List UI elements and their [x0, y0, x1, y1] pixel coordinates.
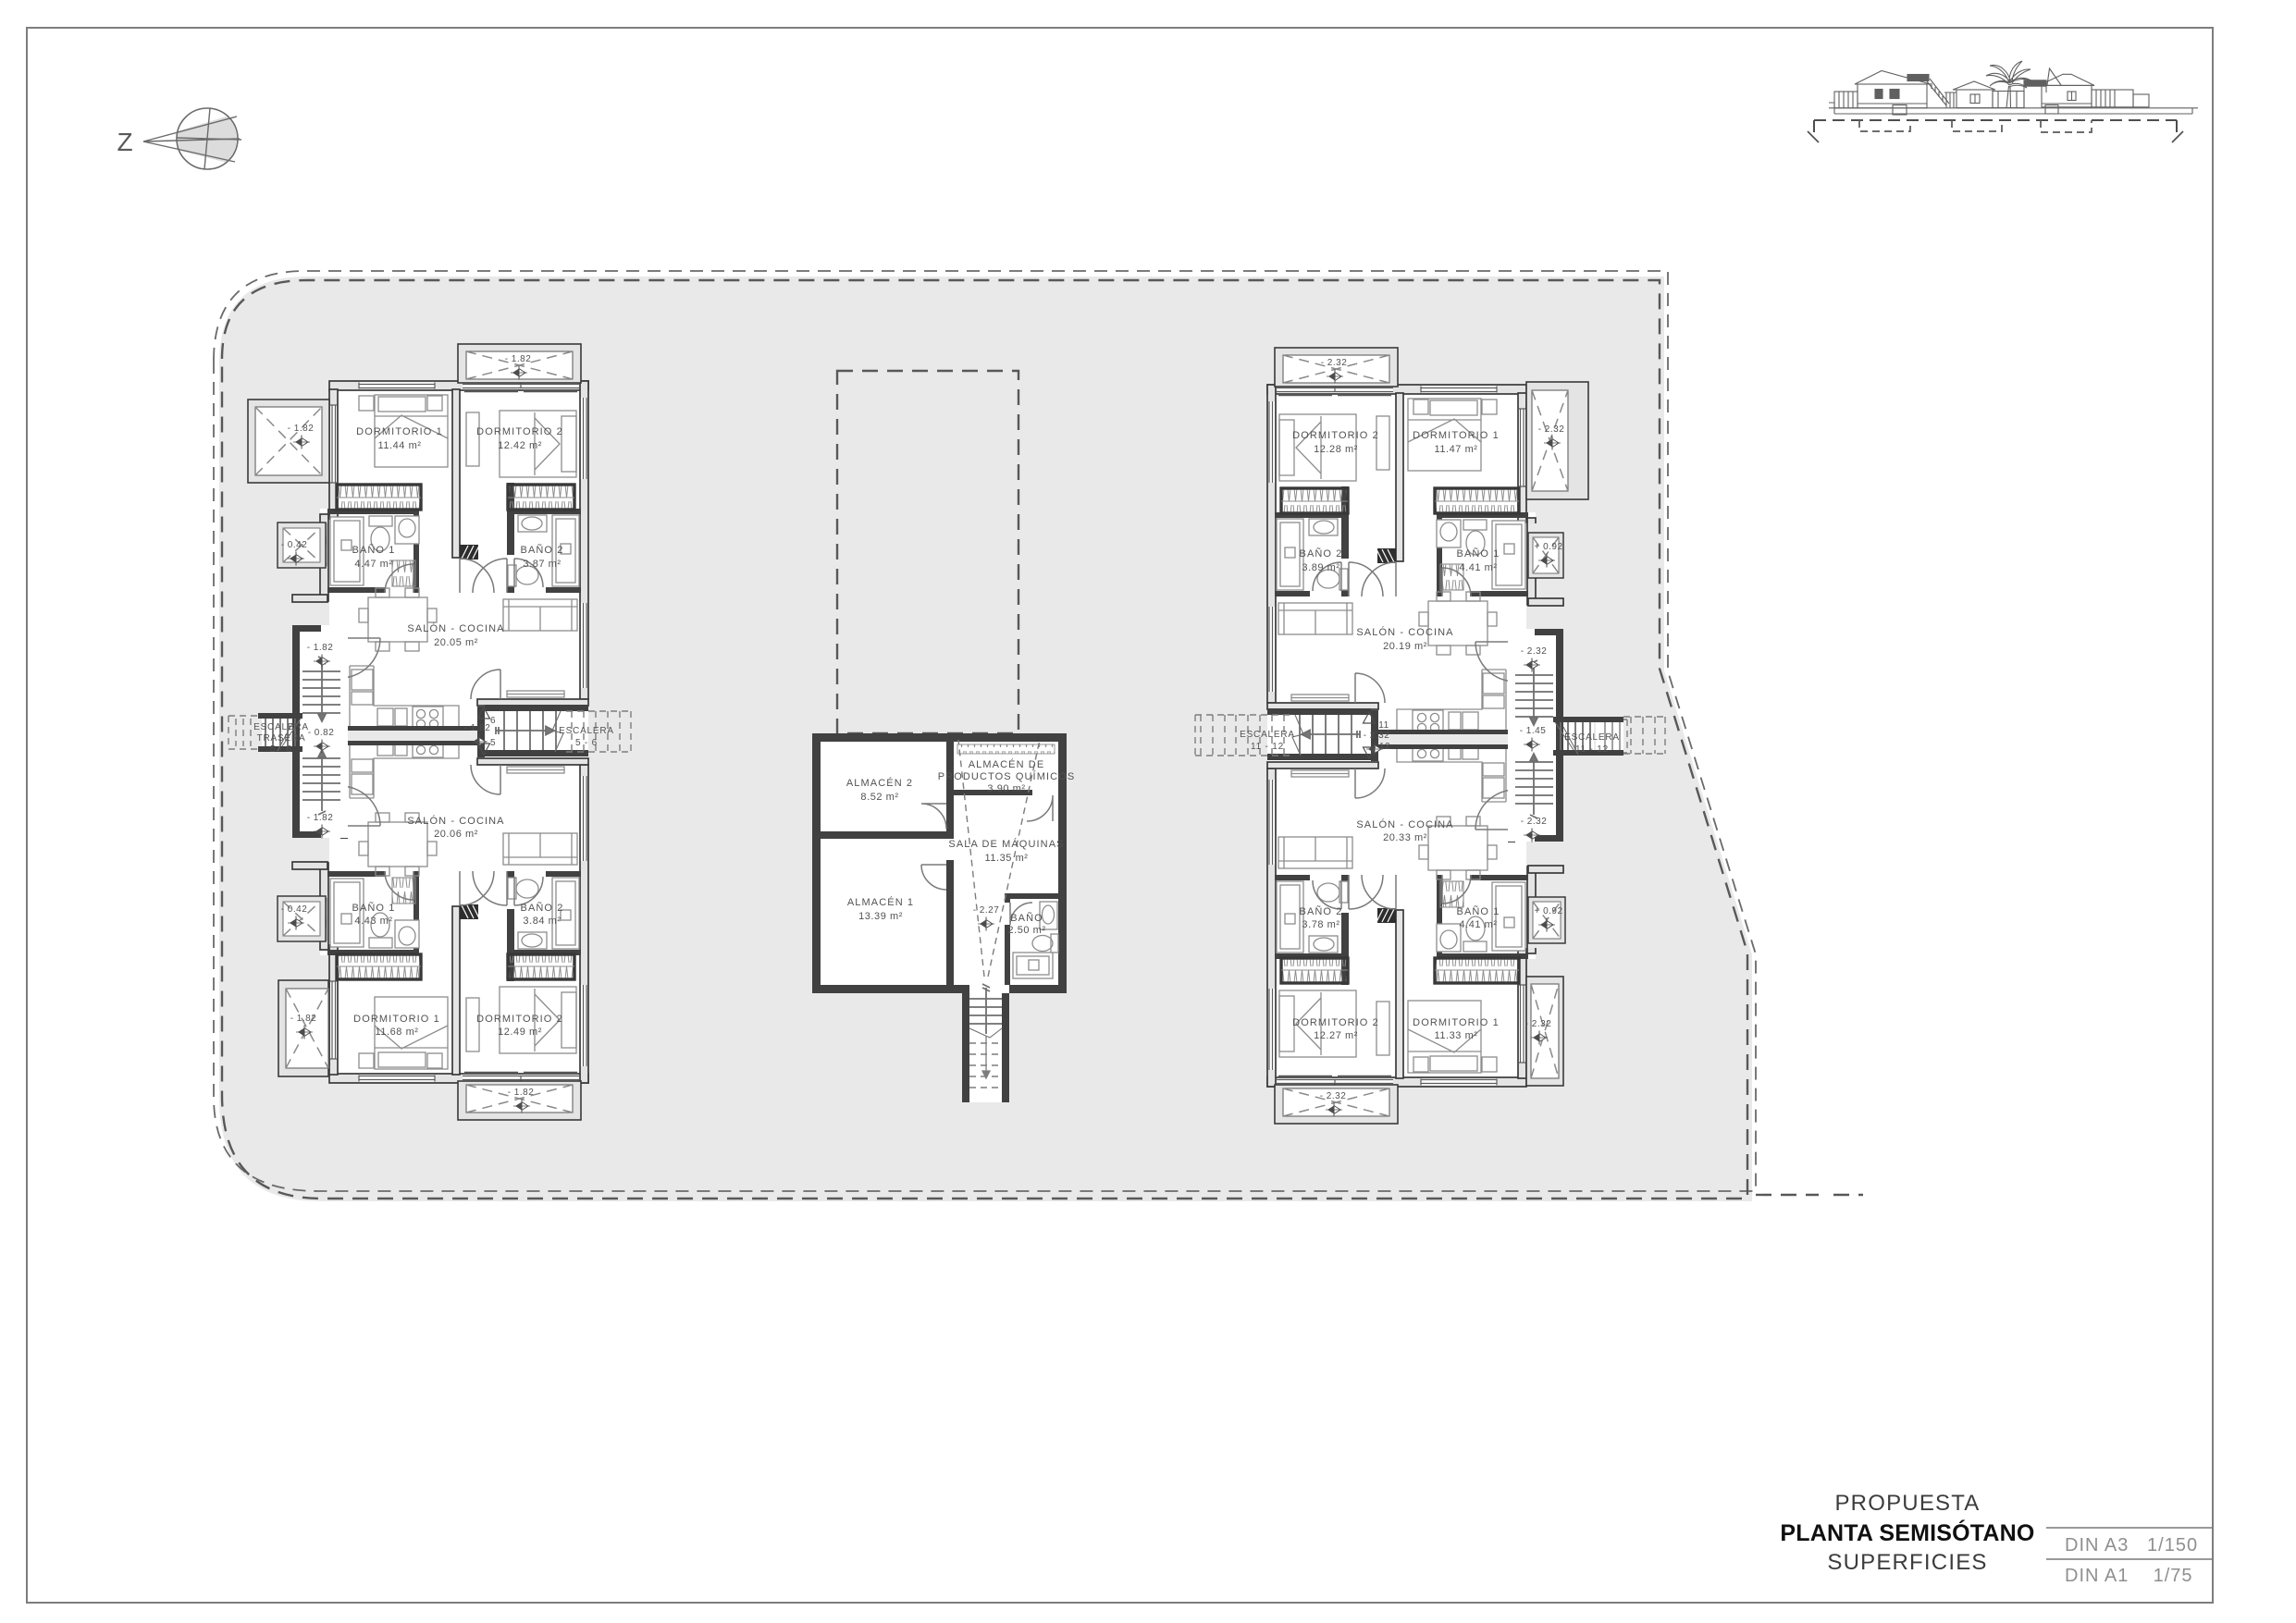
svg-text:3.84 m²: 3.84 m² — [523, 916, 561, 927]
svg-text:4.47 m²: 4.47 m² — [354, 559, 392, 570]
svg-text:6: 6 — [490, 716, 496, 726]
svg-text:SUPERFICIES: SUPERFICIES — [1827, 1550, 1987, 1575]
svg-text:BAÑO 1: BAÑO 1 — [352, 902, 396, 914]
svg-text:BAÑO 1: BAÑO 1 — [352, 544, 396, 556]
svg-text:- 2.32: - 2.32 — [1538, 424, 1565, 435]
svg-text:4.41 m²: 4.41 m² — [1459, 562, 1497, 573]
svg-text:3.90 m²: 3.90 m² — [987, 783, 1025, 794]
svg-text:12.42 m²: 12.42 m² — [498, 440, 542, 451]
svg-text:DORMITORIO 2: DORMITORIO 2 — [1292, 1017, 1379, 1028]
svg-text:11.47 m²: 11.47 m² — [1435, 444, 1478, 455]
svg-text:11.35 m²: 11.35 m² — [985, 853, 1029, 864]
svg-text:SALÓN - COCINA: SALÓN - COCINA — [407, 815, 504, 827]
svg-text:11: 11 — [1378, 720, 1389, 731]
svg-text:ESCALERA: ESCALERA — [253, 722, 309, 732]
svg-text:DORMITORIO 1: DORMITORIO 1 — [1413, 430, 1500, 441]
svg-text:- 2.32: - 2.32 — [1321, 358, 1348, 368]
svg-text:SALA DE MÁQUINAS: SALA DE MÁQUINAS — [948, 838, 1064, 850]
svg-text:PRODUCTOS QUÍMICOS: PRODUCTOS QUÍMICOS — [938, 770, 1076, 782]
svg-text:DORMITORIO 2: DORMITORIO 2 — [476, 1014, 563, 1025]
svg-text:DORMITORIO 1: DORMITORIO 1 — [353, 1014, 440, 1025]
svg-text:11 - 12: 11 - 12 — [1575, 744, 1609, 755]
svg-text:BAÑO: BAÑO — [1010, 912, 1043, 924]
svg-text:2.50 m²: 2.50 m² — [1007, 925, 1045, 936]
svg-text:12.27 m²: 12.27 m² — [1314, 1030, 1358, 1041]
svg-text:8.52 m²: 8.52 m² — [860, 792, 898, 803]
svg-text:BAÑO 1: BAÑO 1 — [1457, 905, 1500, 917]
svg-text:12.49 m²: 12.49 m² — [498, 1027, 542, 1038]
svg-text:- 1.82: - 1.82 — [508, 1088, 535, 1098]
svg-text:- 1.82: - 1.82 — [307, 813, 334, 823]
svg-text:3.89 m²: 3.89 m² — [1302, 562, 1339, 573]
svg-text:- 1.45: - 1.45 — [1520, 726, 1547, 736]
svg-text:- 1.82: - 1.82 — [288, 424, 315, 434]
svg-text:DORMITORIO 1: DORMITORIO 1 — [356, 426, 443, 437]
svg-text:- 2.32: - 2.32 — [1521, 646, 1548, 657]
svg-text:20.05 m²: 20.05 m² — [434, 637, 478, 648]
svg-text:SALÓN - COCINA: SALÓN - COCINA — [1356, 626, 1453, 638]
svg-text:20.06 m²: 20.06 m² — [434, 829, 478, 840]
svg-text:4.43 m²: 4.43 m² — [354, 916, 392, 927]
svg-text:PROPUESTA: PROPUESTA — [1834, 1491, 1980, 1516]
svg-text:DORMITORIO 2: DORMITORIO 2 — [476, 426, 563, 437]
svg-text:- 2.32: - 2.32 — [1525, 1019, 1552, 1029]
svg-text:- 0.42: - 0.42 — [281, 904, 308, 915]
svg-text:TRASERA: TRASERA — [257, 733, 306, 744]
svg-text:3.87 m²: 3.87 m² — [523, 559, 561, 570]
svg-text:BAÑO 1: BAÑO 1 — [1457, 547, 1500, 559]
svg-text:- 2.27: - 2.27 — [973, 905, 1000, 916]
svg-text:- 2.32: - 2.32 — [1320, 1091, 1347, 1101]
svg-text:4.41 m²: 4.41 m² — [1459, 919, 1497, 930]
svg-text:20.33 m²: 20.33 m² — [1383, 832, 1427, 843]
svg-text:- 1.82: - 1.82 — [505, 354, 532, 364]
svg-text:DORMITORIO 2: DORMITORIO 2 — [1292, 430, 1379, 441]
svg-text:+ 0.92: + 0.92 — [1534, 542, 1562, 552]
svg-text:Z: Z — [117, 128, 132, 156]
svg-text:12: 12 — [1379, 742, 1390, 752]
svg-text:SALÓN - COCINA: SALÓN - COCINA — [1356, 818, 1453, 830]
svg-text:5 - 6: 5 - 6 — [270, 744, 292, 755]
svg-text:5 - 6: 5 - 6 — [575, 738, 598, 748]
svg-text:BAÑO 2: BAÑO 2 — [521, 544, 564, 556]
svg-text:- 1.82: - 1.82 — [464, 723, 491, 733]
svg-text:3.78 m²: 3.78 m² — [1302, 919, 1339, 930]
svg-text:- 1.82: - 1.82 — [290, 1014, 317, 1024]
svg-text:SALÓN - COCINA: SALÓN - COCINA — [407, 622, 504, 634]
svg-text:11.44 m²: 11.44 m² — [378, 440, 422, 451]
svg-text:ESCALERA: ESCALERA — [1564, 732, 1620, 743]
svg-text:ESCALERA: ESCALERA — [1240, 730, 1295, 740]
svg-text:- 2.32: - 2.32 — [1521, 817, 1548, 827]
svg-text:PLANTA SEMISÓTANO: PLANTA SEMISÓTANO — [1780, 1518, 2034, 1546]
svg-text:- 0.42: - 0.42 — [281, 540, 308, 550]
svg-text:- 0.82: - 0.82 — [308, 728, 335, 738]
svg-text:ALMACÉN 2: ALMACÉN 2 — [846, 777, 913, 789]
svg-text:DIN A3 1/150: DIN A3 1/150 — [2065, 1535, 2198, 1555]
svg-text:ALMACÉN 1: ALMACÉN 1 — [847, 896, 914, 908]
svg-text:11.68 m²: 11.68 m² — [376, 1027, 419, 1038]
svg-text:5: 5 — [490, 738, 496, 748]
svg-text:20.19 m²: 20.19 m² — [1383, 641, 1427, 652]
svg-text:11.33 m²: 11.33 m² — [1435, 1030, 1478, 1041]
svg-text:BAÑO 2: BAÑO 2 — [521, 902, 564, 914]
svg-text:- 1.82: - 1.82 — [307, 643, 334, 653]
svg-text:11 - 12: 11 - 12 — [1251, 742, 1284, 752]
svg-text:BAÑO 2: BAÑO 2 — [1300, 905, 1343, 917]
svg-text:ESCALERA: ESCALERA — [559, 726, 614, 736]
svg-text:13.39 m²: 13.39 m² — [858, 911, 903, 922]
svg-text:- 2.32: - 2.32 — [1364, 731, 1390, 741]
svg-text:BAÑO 2: BAÑO 2 — [1300, 547, 1343, 559]
svg-text:ALMACÉN DE: ALMACÉN DE — [969, 758, 1045, 770]
svg-text:DIN A1 1/75: DIN A1 1/75 — [2065, 1566, 2193, 1586]
svg-text:12.28 m²: 12.28 m² — [1314, 444, 1358, 455]
svg-text:+ 0.92: + 0.92 — [1534, 906, 1562, 916]
svg-text:DORMITORIO 1: DORMITORIO 1 — [1413, 1017, 1500, 1028]
